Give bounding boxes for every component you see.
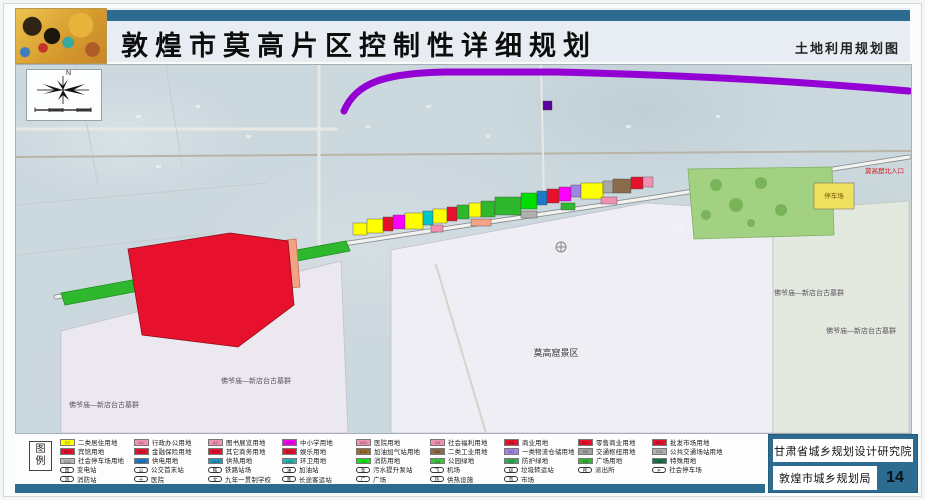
legend-label: 供热设施 [447,475,473,484]
legend-color-swatch: B31 [282,448,297,455]
plan-sheet: 敦煌市莫高片区控制性详细规划 土地利用规划图 [0,0,925,500]
header-accent-bar [107,10,910,21]
legend-label: 中小学用地 [300,438,333,447]
page-number: 14 [877,466,913,490]
legend-color-swatch: W1 [504,448,519,455]
legend-item: B41加油加气站用地 [356,448,430,455]
map-canvas: 莫高窟景区佛爷庙—新店台古墓群佛爷庙—新店台古墓群佛爷庙—新店台古墓群佛爷庙—新… [16,65,911,433]
sheet-subtitle: 土地利用规划图 [795,38,900,57]
legend-grid: R2二类居住用地B14宾馆用地S42社会停车场用地电变电站消消防站A1行政办公用… [60,439,726,483]
legend-item: 客长途客运站 [282,476,356,483]
legend-item: B1商业用地 [504,439,578,446]
legend-label: 加油站 [299,465,319,474]
legend-color-swatch: S41 [652,448,667,455]
map-label: 佛爷庙—新店台古墓群 [221,376,291,385]
page-title: 敦煌市莫高片区控制性详细规划 [121,24,597,63]
legend-label: 其它商务用地 [226,447,266,456]
market-icon: 市 [504,476,518,483]
legend-item: R2二类居住用地 [60,439,134,446]
crosshair-marker [556,242,566,252]
legend-bottom-bar [15,484,765,493]
legend-item: S42社会停车场用地 [60,457,134,464]
legend-color-swatch: B29 [208,448,223,455]
legend-item: 电变电站 [60,467,134,474]
legend-item: G1公园绿地 [430,457,504,464]
legend-color-swatch: A1 [134,439,149,446]
legend-color-swatch: B1 [504,439,519,446]
legend-label: 商业用地 [522,438,548,447]
legend-item: W1一类物流仓储用地 [504,448,578,455]
legend-label: 九年一贯制学校 [225,475,271,484]
legend-column: A2图书展览用地B29其它商务用地U15供热用地铁铁路站场文九年一贯制学校 [208,439,282,483]
compass-box: N [26,69,102,121]
school-icon: 文 [208,476,222,483]
legend-item: M2二类工业用地 [430,448,504,455]
legend-item: G2防护绿地 [504,457,578,464]
legend-color-swatch: G1 [430,458,445,465]
police-station-icon: 所 [578,467,592,474]
legend-label: 医院 [151,475,164,484]
legend-item: B31娱乐用地 [282,448,356,455]
legend-label: 一类物流仓储用地 [522,447,575,456]
legend-label: 广场 [373,475,386,484]
legend-item: H4特殊用地 [652,457,726,464]
legend-label: 宾馆用地 [78,447,104,456]
legend-label: 交通枢纽用地 [596,447,636,456]
legend-color-swatch: B12 [652,439,667,446]
legend-item: U15供热用地 [208,457,282,464]
legend-item: A2图书展览用地 [208,439,282,446]
substation-icon: 电 [60,467,74,474]
land-use-map: 莫高窟景区佛爷庙—新店台古墓群佛爷庙—新店台古墓群佛爷庙—新店台古墓群佛爷庙—新… [15,64,912,434]
legend-label: 供电用地 [152,456,178,465]
legend-label: 消防站 [77,475,97,484]
legend-label: 特殊用地 [670,456,696,465]
map-label: 佛爷庙—新店台古墓群 [774,288,844,297]
legend-color-swatch: A51 [356,439,371,446]
legend-label: 医院用地 [374,438,400,447]
legend-item: U22环卫用地 [282,457,356,464]
legend-label: 零售商业用地 [596,438,636,447]
legend-item: B14宾馆用地 [60,448,134,455]
header: 敦煌市莫高片区控制性详细规划 土地利用规划图 [15,8,910,62]
legend-item: 消消防站 [60,476,134,483]
legend-column: A1行政办公用地B21金融保险用地U12供电用地公公交首末站十医院 [134,439,208,483]
railway-station-icon: 铁 [208,467,222,474]
bus-terminal-icon: 公 [134,467,148,474]
legend-item: P社会停车场 [652,467,726,474]
legend-item: 公公交首末站 [134,467,208,474]
bureau-row: 敦煌市城乡规划局 14 [773,466,913,490]
legend-item: 广广场 [356,476,430,483]
legend-label: 变电站 [77,465,97,474]
legend-label: 社会停车场用地 [78,456,124,465]
legend-column: A51医院用地B41加油加气站用地U3消防用地泵污水提升泵站广广场 [356,439,430,483]
legend-color-swatch: A33 [282,439,297,446]
legend-label: 社会停车场 [669,465,702,474]
legend-label: 铁路站场 [225,465,251,474]
legend-item: B11零售商业用地 [578,439,652,446]
legend-column: B1商业用地W1一类物流仓储用地G2防护绿地圾垃圾转运站市市场 [504,439,578,483]
planning-bureau: 敦煌市城乡规划局 [773,470,877,486]
legend-label: 二类工业用地 [448,447,488,456]
legend-item: G3广场用地 [578,457,652,464]
legend-label: 污水提升泵站 [373,465,413,474]
legend-label: 消防用地 [374,456,400,465]
gas-station-icon: 油 [282,467,296,474]
legend-label: 行政办公用地 [152,438,192,447]
legend-item: U12供电用地 [134,457,208,464]
legend-column: R2二类居住用地B14宾馆用地S42社会停车场用地电变电站消消防站 [60,439,134,483]
legend-item: S3交通枢纽用地 [578,448,652,455]
legend-label: 加油加气站用地 [374,447,420,456]
legend-item: A51医院用地 [356,439,430,446]
legend-label: 二类居住用地 [78,438,118,447]
legend-color-swatch: G2 [504,458,519,465]
legend-title: 图例 [29,441,52,471]
legend-label: 广场用地 [596,456,622,465]
coach-station-icon: 客 [282,476,296,483]
legend-color-swatch: H4 [652,458,667,465]
legend-label: 批发市场用地 [670,438,710,447]
compass-rose-icon [27,70,99,118]
heating-facility-icon: 热 [430,476,444,483]
legend-label: 派出所 [595,465,615,474]
legend-column: A33中小学用地B31娱乐用地U22环卫用地油加油站客长途客运站 [282,439,356,483]
legend-item: 泵污水提升泵站 [356,467,430,474]
fire-station-icon: 消 [60,476,74,483]
legend-item: B29其它商务用地 [208,448,282,455]
legend-column: B12批发市场用地S41公共交通场站用地H4特殊用地P社会停车场 [652,439,726,483]
legend-item: S41公共交通场站用地 [652,448,726,455]
legend-label: 环卫用地 [300,456,326,465]
legend-item: U3消防用地 [356,457,430,464]
pump-station-icon: 泵 [356,467,370,474]
legend-label: 金融保险用地 [152,447,192,456]
map-label: 莫高窟景区 [533,347,578,358]
legend-label: 垃圾转运站 [521,465,554,474]
legend-color-swatch: U15 [208,458,223,465]
legend-label: 长途客运站 [299,475,332,484]
legend-item: B21金融保险用地 [134,448,208,455]
legend-column: B11零售商业用地S3交通枢纽用地G3广场用地所派出所 [578,439,652,483]
legend-column: A6社会福利用地M2二类工业用地G1公园绿地飞机场热供热设施 [430,439,504,483]
legend-item: 十医院 [134,476,208,483]
legend-label: 市场 [521,475,534,484]
legend-color-swatch: S42 [60,458,75,465]
legend-label: 防护绿地 [522,456,548,465]
legend-item: B12批发市场用地 [652,439,726,446]
legend-label: 社会福利用地 [448,438,488,447]
legend-color-swatch: G3 [578,458,593,465]
legend-color-swatch: A6 [430,439,445,446]
legend-item: A33中小学用地 [282,439,356,446]
legend-label: 图书展览用地 [226,438,266,447]
legend-color-swatch: S3 [578,448,593,455]
legend-color-swatch: B14 [60,448,75,455]
legend-color-swatch: B21 [134,448,149,455]
legend-color-swatch: B41 [356,448,371,455]
legend-color-swatch: U22 [282,458,297,465]
legend-label: 公共交通场站用地 [670,447,723,456]
legend-item: 圾垃圾转运站 [504,467,578,474]
legend-color-swatch: U12 [134,458,149,465]
plaza-icon: 广 [356,476,370,483]
legend-item: 热供热设施 [430,476,504,483]
legend-item: 文九年一贯制学校 [208,476,282,483]
legend-item: 飞机场 [430,467,504,474]
map-label: 佛爷庙—新店台古墓群 [826,326,896,335]
design-institute: 甘肃省城乡规划设计研究院 [773,439,913,462]
legend-color-swatch: M2 [430,448,445,455]
hospital-icon: 十 [134,476,148,483]
legend-color-swatch: R2 [60,439,75,446]
legend-item: 铁铁路站场 [208,467,282,474]
legend-label: 娱乐用地 [300,447,326,456]
legend-item: 油加油站 [282,467,356,474]
legend-item: 市市场 [504,476,578,483]
map-label: 停车场 [824,191,844,200]
map-label: 莫高窟北入口 [865,166,904,175]
legend-label: 机场 [447,465,460,474]
airport-icon: 飞 [430,467,444,474]
legend-label: 供热用地 [226,456,252,465]
legend-item: A6社会福利用地 [430,439,504,446]
legend-label: 公交首末站 [151,465,184,474]
legend-color-swatch: U3 [356,458,371,465]
legend-item: 所派出所 [578,467,652,474]
parking-icon: P [652,467,666,474]
garbage-transfer-icon: 圾 [504,467,518,474]
title-block: 甘肃省城乡规划设计研究院 敦煌市城乡规划局 14 [768,434,918,493]
legend-color-swatch: B11 [578,439,593,446]
legend-label: 公园绿地 [448,456,474,465]
legend-color-swatch: A2 [208,439,223,446]
legend-item: A1行政办公用地 [134,439,208,446]
dunhuang-mural-logo [15,8,107,64]
map-label: 佛爷庙—新店台古墓群 [69,400,139,409]
